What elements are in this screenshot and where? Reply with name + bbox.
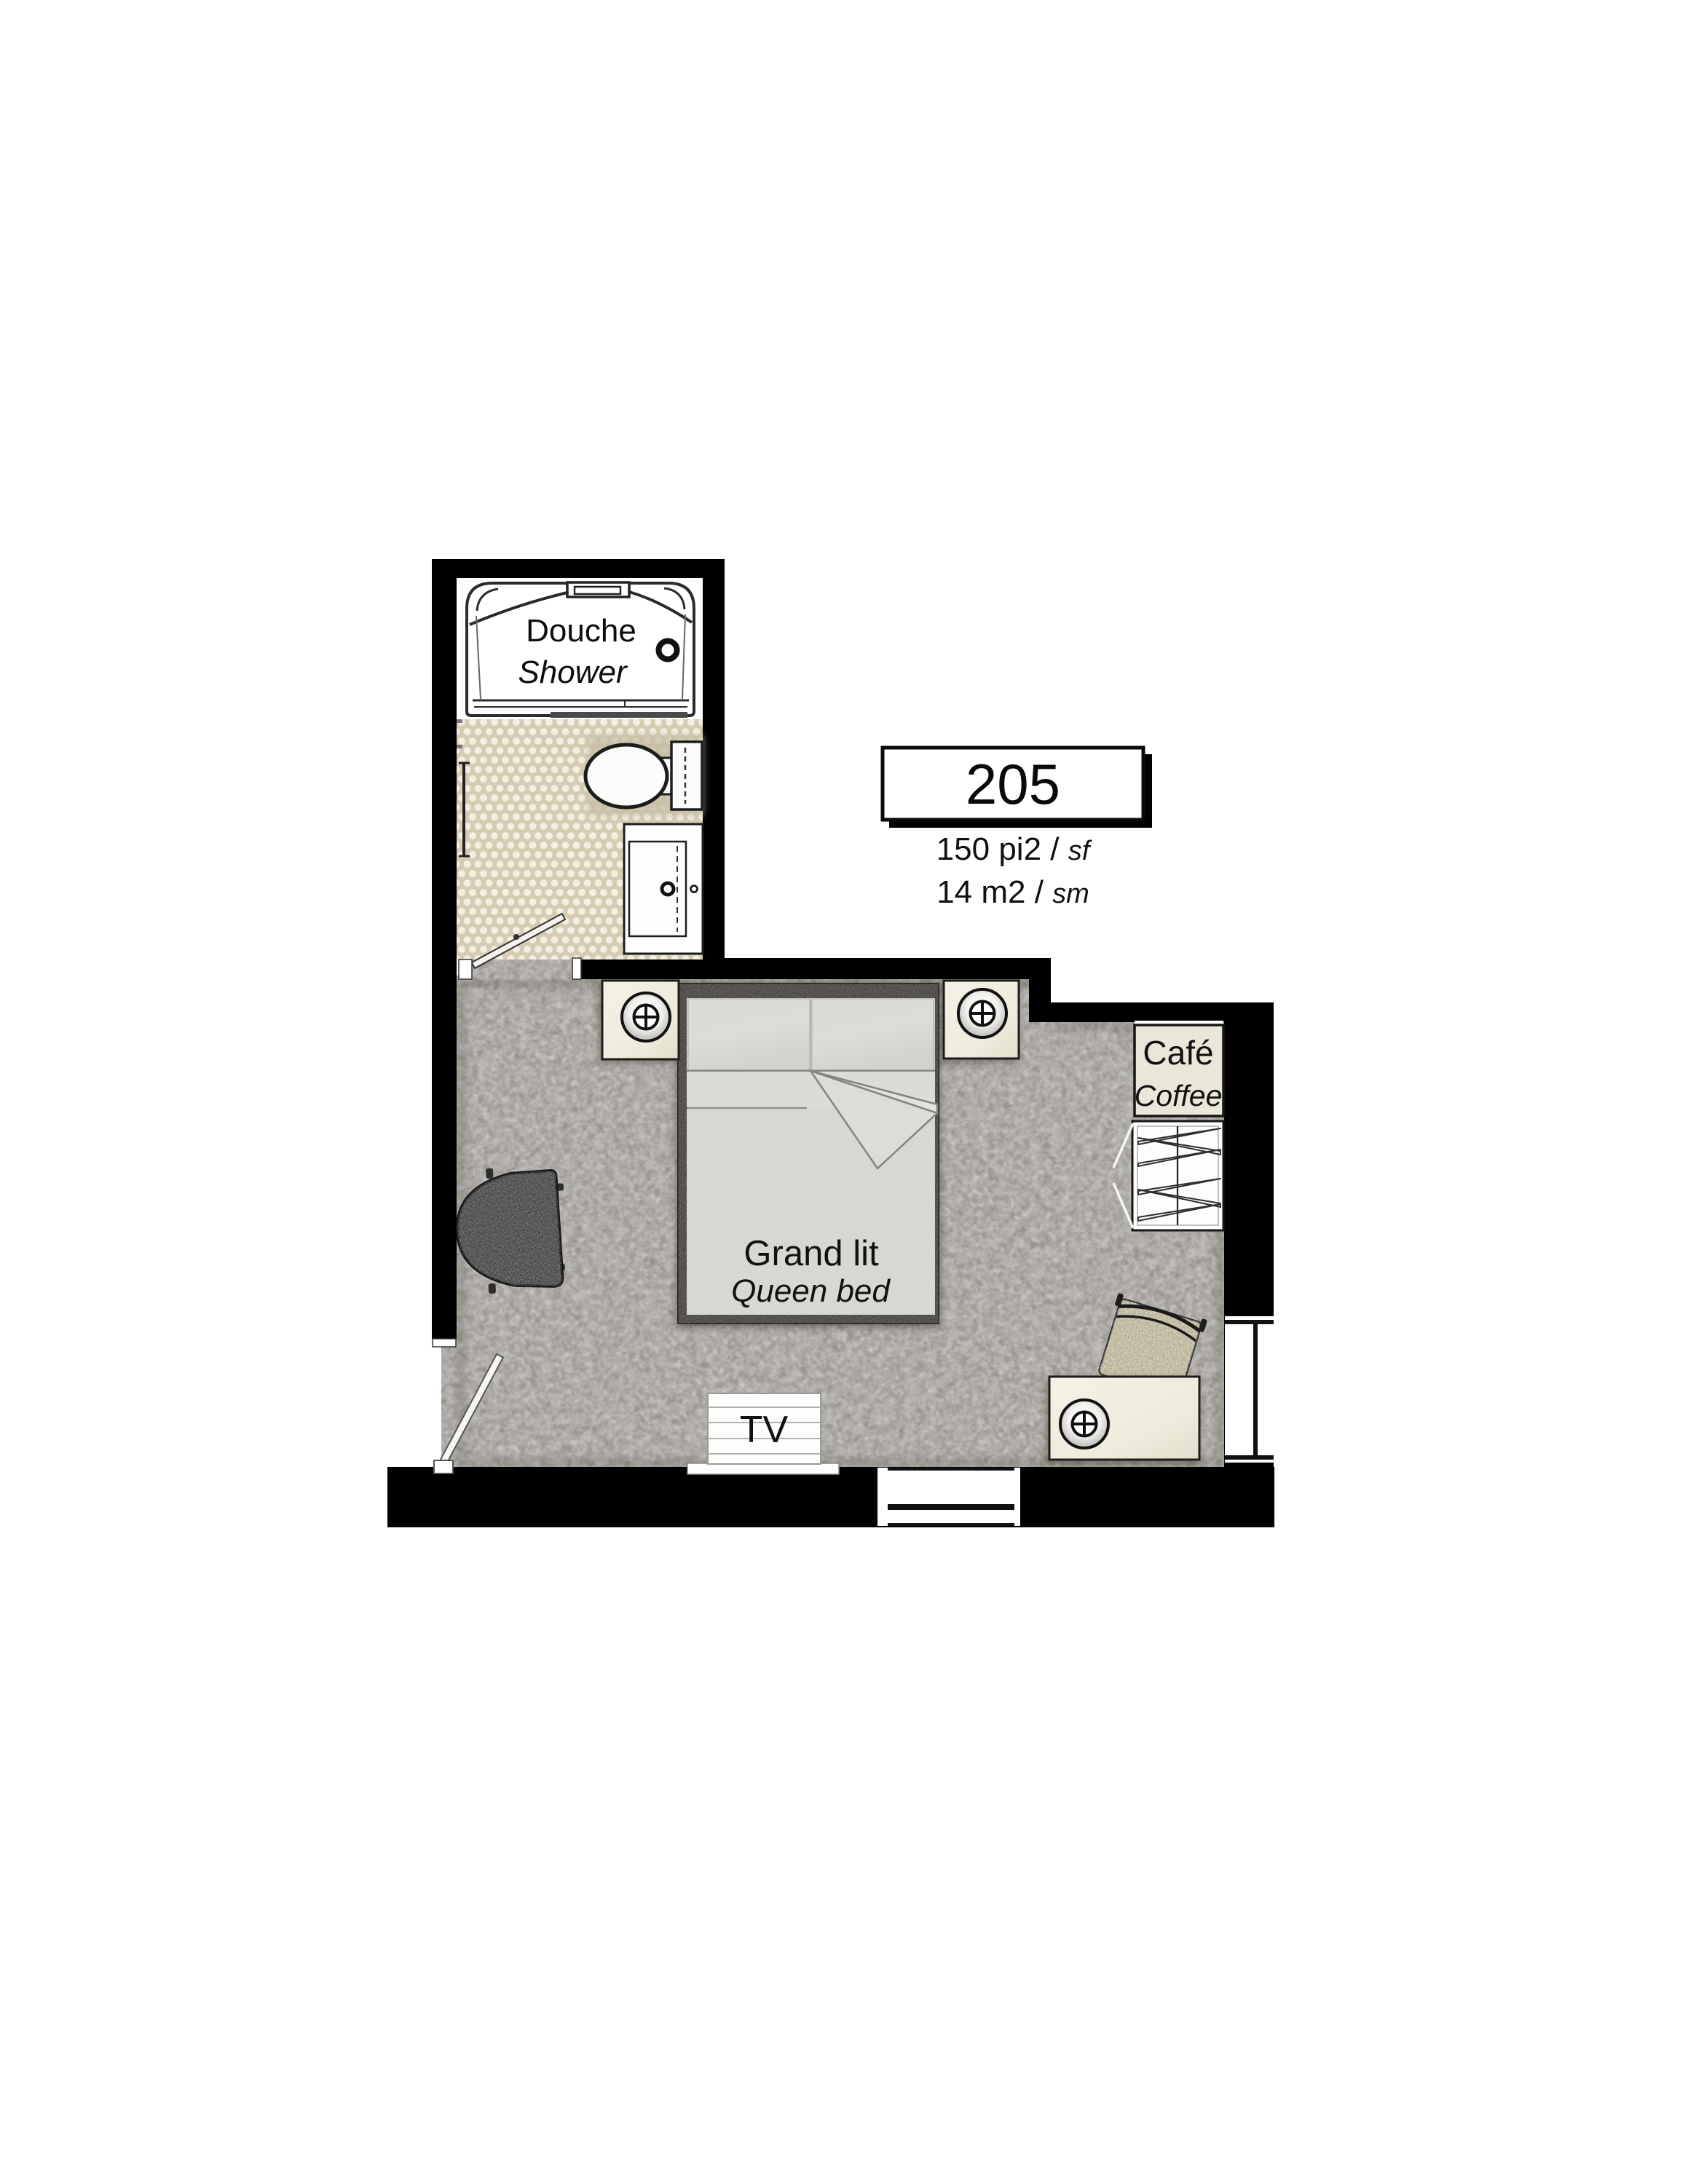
svg-text:Coffee: Coffee <box>1135 1079 1223 1112</box>
svg-text:Grand lit: Grand lit <box>744 1234 879 1273</box>
svg-text:Café: Café <box>1143 1034 1213 1072</box>
svg-text:14 m2 / sm: 14 m2 / sm <box>936 874 1089 910</box>
svg-text:150 pi2 / sf: 150 pi2 / sf <box>936 831 1092 867</box>
svg-text:205: 205 <box>966 752 1060 816</box>
svg-text:TV: TV <box>740 1409 789 1451</box>
svg-text:Shower: Shower <box>518 654 628 690</box>
svg-text:Douche: Douche <box>526 613 636 649</box>
svg-text:Queen bed: Queen bed <box>731 1273 891 1309</box>
